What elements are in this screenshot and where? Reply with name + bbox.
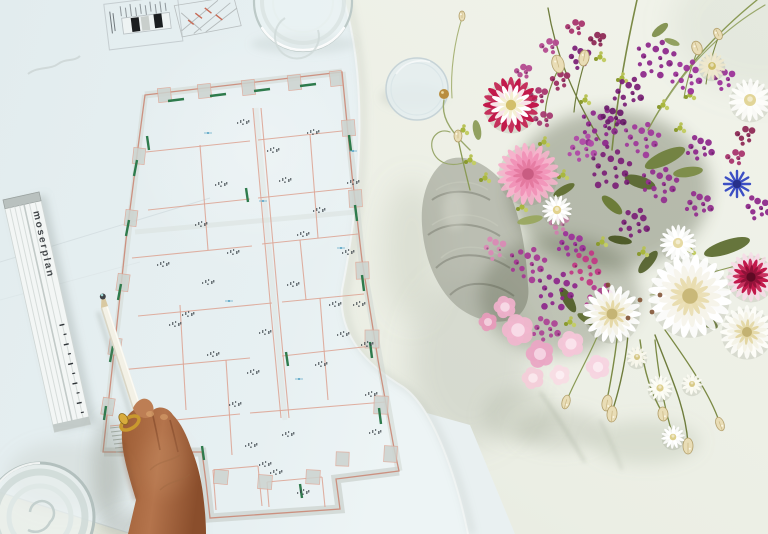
- annotation-mark: [358, 306, 360, 307]
- annotation-mark: [268, 331, 270, 334]
- annotation-mark: [290, 282, 291, 285]
- annotation-mark: [162, 266, 164, 267]
- green-bud: [560, 172, 565, 177]
- annotation-mark: [235, 401, 236, 403]
- annotation-mark: [372, 342, 373, 345]
- annotation-mark: [250, 447, 252, 448]
- green-bud: [524, 208, 528, 212]
- annotation-mark: [278, 148, 279, 151]
- green-bud: [602, 58, 606, 62]
- annotation-mark: [279, 471, 281, 474]
- annotation-mark: [187, 316, 189, 317]
- annotation-mark: [312, 134, 314, 135]
- annotation-mark: [358, 180, 359, 183]
- annotation-mark: [268, 463, 270, 466]
- annotation-mark: [326, 362, 327, 365]
- green-bud: [679, 122, 683, 126]
- annotation-mark: [157, 264, 158, 266]
- annotation-mark: [226, 182, 227, 185]
- pilaster: [213, 469, 228, 484]
- annotation-mark: [276, 469, 277, 471]
- seed-dot: [626, 316, 631, 321]
- annotation-mark: [251, 442, 252, 444]
- annotation-mark: [332, 302, 333, 305]
- pilaster: [329, 70, 343, 86]
- annotation-mark: [320, 366, 322, 367]
- annotation-mark: [297, 234, 298, 236]
- green-bud: [565, 176, 569, 180]
- annotation-mark: [258, 370, 259, 373]
- annotation-mark: [207, 284, 209, 285]
- annotation-mark: [303, 489, 304, 491]
- amber-bud: [439, 89, 449, 99]
- annotation-mark: [232, 254, 234, 255]
- green-bud: [462, 124, 466, 128]
- scale-bar-black: [131, 17, 141, 32]
- green-bud: [637, 252, 641, 256]
- green-bud: [587, 101, 591, 105]
- annotation-mark: [316, 208, 317, 211]
- annotation-mark: [293, 432, 294, 435]
- pilaster: [197, 83, 211, 98]
- annotation-mark: [182, 314, 183, 316]
- annotation-mark: [318, 130, 319, 133]
- knuckle-highlight: [160, 414, 168, 420]
- annotation-mark: [372, 430, 373, 433]
- annotation-mark: [353, 304, 354, 306]
- annotation-mark: [306, 233, 308, 236]
- annotation-mark: [229, 404, 230, 406]
- annotation-mark: [371, 391, 372, 393]
- annotation-mark: [259, 464, 260, 466]
- annotation-mark: [352, 184, 354, 185]
- annotation-mark: [262, 330, 263, 333]
- annotation-mark: [248, 443, 249, 446]
- green-bud: [597, 54, 602, 59]
- annotation-mark: [296, 283, 298, 286]
- annotation-mark: [359, 301, 360, 303]
- scale-bar-gray: [141, 16, 151, 31]
- annotation-mark: [200, 226, 202, 227]
- green-bud: [684, 95, 688, 99]
- annotation-mark: [213, 351, 214, 353]
- annotation-mark: [236, 251, 238, 254]
- annotation-mark: [380, 430, 381, 433]
- photo-scene: moserplan: [0, 0, 768, 534]
- annotation-mark: [264, 334, 266, 335]
- annotation-mark: [221, 181, 222, 183]
- annotation-mark: [275, 474, 277, 475]
- pilaster: [287, 74, 301, 90]
- annotation-mark: [334, 306, 336, 307]
- annotation-mark: [191, 313, 193, 316]
- annotation-mark: [365, 394, 366, 396]
- annotation-mark: [342, 336, 344, 337]
- green-bud: [564, 322, 568, 326]
- annotation-mark: [207, 354, 208, 356]
- annotation-mark: [230, 250, 231, 253]
- annotation-mark: [247, 372, 248, 374]
- annotation-mark: [281, 470, 282, 473]
- amber-bud-glint: [441, 91, 444, 94]
- annotation-mark: [169, 324, 170, 326]
- annotation-mark: [232, 402, 233, 405]
- pilaster: [336, 452, 349, 466]
- green-bud: [665, 106, 669, 110]
- annotation-mark: [370, 343, 372, 346]
- pilaster: [384, 446, 398, 463]
- annotation-mark: [297, 492, 298, 494]
- green-bud: [469, 154, 473, 158]
- green-bud: [465, 131, 469, 135]
- annotation-mark: [213, 280, 214, 283]
- pilaster: [132, 147, 146, 164]
- green-bud: [616, 78, 620, 82]
- green-bud: [596, 242, 600, 246]
- green-bud: [516, 207, 520, 211]
- annotation-mark: [353, 179, 354, 181]
- annotation-mark: [233, 249, 234, 251]
- annotation-mark: [338, 303, 340, 306]
- annotation-mark: [254, 444, 256, 447]
- annotation-mark: [318, 362, 319, 365]
- annotation-mark: [310, 130, 311, 133]
- annotation-mark: [273, 470, 274, 473]
- annotation-mark: [290, 178, 291, 181]
- annotation-mark: [238, 250, 239, 253]
- dried-bud: [454, 130, 462, 142]
- annotation-mark: [348, 332, 349, 335]
- annotation-mark: [356, 181, 358, 184]
- stem-shadow: [482, 387, 558, 443]
- annotation-mark: [322, 209, 324, 212]
- annotation-mark: [367, 341, 368, 343]
- annotation-mark: [282, 178, 283, 181]
- annotation-mark: [272, 152, 274, 153]
- green-bud: [579, 100, 583, 104]
- annotation-mark: [346, 333, 348, 336]
- photo-canvas: moserplan: [0, 0, 768, 534]
- annotation-mark: [298, 282, 299, 285]
- annotation-mark: [350, 180, 351, 183]
- pilaster: [306, 470, 321, 485]
- annotation-mark: [374, 393, 376, 396]
- annotation-mark: [321, 361, 322, 363]
- annotation-mark: [292, 286, 294, 287]
- green-bud: [582, 97, 587, 102]
- annotation-mark: [248, 120, 249, 123]
- annotation-mark: [270, 472, 271, 474]
- annotation-mark: [370, 396, 372, 397]
- green-bud: [472, 161, 476, 165]
- annotation-mark: [234, 406, 236, 407]
- green-bud: [604, 243, 608, 247]
- annotation-mark: [180, 322, 181, 325]
- annotation-mark: [369, 432, 370, 434]
- green-bud: [662, 99, 666, 103]
- annotation-mark: [215, 184, 216, 186]
- annotation-mark: [324, 208, 325, 211]
- pilaster: [116, 273, 130, 292]
- green-bud: [621, 72, 625, 76]
- annotation-mark: [337, 334, 338, 336]
- annotation-mark: [227, 252, 228, 254]
- annotation-mark: [342, 252, 343, 254]
- annotation-mark: [376, 392, 377, 395]
- annotation-mark: [316, 131, 318, 134]
- annotation-mark: [345, 250, 346, 253]
- annotation-mark: [287, 436, 289, 437]
- annotation-mark: [202, 282, 203, 284]
- annotation-mark: [324, 363, 326, 366]
- annotation-mark: [243, 119, 244, 121]
- annotation-mark: [308, 232, 309, 235]
- annotation-mark: [195, 224, 196, 226]
- annotation-mark: [240, 120, 241, 123]
- annotation-mark: [282, 434, 283, 436]
- annotation-mark: [313, 210, 314, 212]
- annotation-mark: [185, 312, 186, 315]
- annotation-mark: [303, 231, 304, 233]
- annotation-mark: [276, 149, 278, 152]
- annotation-mark: [364, 302, 365, 305]
- green-bud: [487, 179, 491, 183]
- annotation-mark: [245, 445, 246, 447]
- annotation-mark: [242, 124, 244, 125]
- annotation-mark: [279, 180, 280, 182]
- green-bud: [479, 178, 483, 182]
- annotation-mark: [175, 321, 176, 323]
- pencil-tip-glint: [101, 294, 104, 297]
- annotation-mark: [335, 301, 336, 303]
- annotation-mark: [246, 121, 248, 124]
- annotation-mark: [204, 223, 206, 226]
- annotation-mark: [293, 281, 294, 283]
- annotation-mark: [285, 177, 286, 179]
- annotation-mark: [308, 490, 309, 493]
- annotation-mark: [343, 331, 344, 333]
- annotation-mark: [174, 326, 176, 327]
- green-bud: [546, 143, 550, 147]
- annotation-mark: [216, 353, 218, 356]
- annotation-mark: [302, 236, 304, 237]
- pilaster: [101, 397, 116, 416]
- green-bud: [464, 160, 468, 164]
- pilaster: [341, 120, 355, 137]
- annotation-mark: [270, 148, 271, 151]
- green-bud: [599, 239, 604, 244]
- pilaster: [258, 475, 273, 490]
- annotation-mark: [237, 122, 238, 124]
- annotation-mark: [287, 284, 288, 286]
- seed-dot: [650, 310, 655, 315]
- green-bud: [657, 105, 661, 109]
- green-bud: [543, 136, 547, 140]
- annotation-mark: [252, 374, 254, 375]
- annotation-mark: [306, 491, 308, 494]
- green-bud: [572, 323, 576, 327]
- annotation-mark: [193, 312, 194, 315]
- annotation-mark: [351, 251, 353, 254]
- annotation-mark: [319, 207, 320, 209]
- annotation-mark: [178, 323, 180, 326]
- annotation-mark: [375, 429, 376, 431]
- green-bud: [562, 169, 566, 173]
- annotation-mark: [348, 249, 349, 251]
- annotation-mark: [211, 281, 213, 284]
- annotation-mark: [368, 392, 369, 395]
- annotation-mark: [362, 303, 364, 306]
- pilaster: [349, 190, 363, 208]
- annotation-mark: [188, 311, 189, 313]
- annotation-mark: [340, 332, 341, 335]
- annotation-mark: [288, 179, 290, 182]
- knuckle-highlight: [146, 411, 154, 417]
- green-bud: [567, 319, 572, 324]
- green-bud: [541, 139, 546, 144]
- annotation-mark: [340, 302, 341, 305]
- annotation-mark: [265, 461, 266, 463]
- annotation-mark: [356, 302, 357, 305]
- seed-dot: [638, 298, 643, 303]
- annotation-mark: [300, 232, 301, 235]
- annotation-mark: [212, 356, 214, 357]
- annotation-mark: [220, 186, 222, 187]
- annotation-mark: [347, 254, 349, 255]
- pilaster: [124, 209, 138, 226]
- green-bud: [677, 125, 682, 130]
- annotation-mark: [160, 262, 161, 265]
- annotation-mark: [253, 369, 254, 371]
- green-bud: [640, 249, 645, 254]
- green-bud: [484, 172, 488, 176]
- annotation-mark: [364, 342, 365, 345]
- annotation-mark: [291, 433, 293, 436]
- annotation-mark: [302, 494, 304, 495]
- annotation-mark: [168, 262, 169, 265]
- annotation-mark: [250, 370, 251, 373]
- annotation-mark: [284, 182, 286, 183]
- green-bud: [692, 96, 696, 100]
- coaster-disc: [386, 58, 448, 120]
- annotation-mark: [315, 364, 316, 366]
- green-bud: [594, 57, 598, 61]
- annotation-mark: [307, 132, 308, 134]
- annotation-mark: [201, 221, 202, 223]
- annotation-mark: [270, 330, 271, 333]
- green-bud: [645, 253, 649, 257]
- green-bud: [642, 246, 646, 250]
- scale-bar-black: [153, 13, 163, 28]
- annotation-mark: [208, 279, 209, 281]
- annotation-mark: [262, 462, 263, 465]
- green-bud: [467, 157, 472, 162]
- annotation-mark: [264, 466, 266, 467]
- annotation-mark: [210, 352, 211, 355]
- annotation-mark: [256, 443, 257, 446]
- annotation-mark: [288, 431, 289, 433]
- annotation-mark: [361, 344, 362, 346]
- green-bud: [482, 175, 487, 180]
- annotation-mark: [198, 222, 199, 225]
- annotation-mark: [265, 329, 266, 331]
- seed-dot: [658, 293, 663, 298]
- annotation-mark: [329, 304, 330, 306]
- green-bud: [584, 94, 588, 98]
- annotation-mark: [285, 432, 286, 435]
- vase-highlight: [443, 190, 467, 230]
- annotation-mark: [313, 129, 314, 131]
- annotation-mark: [374, 434, 376, 435]
- pilaster: [374, 396, 389, 414]
- annotation-mark: [206, 222, 207, 225]
- green-bud: [599, 51, 603, 55]
- annotation-mark: [166, 263, 168, 266]
- pilaster: [365, 330, 379, 348]
- annotation-mark: [259, 332, 260, 334]
- dried-bud: [459, 11, 465, 21]
- annotation-mark: [378, 431, 380, 434]
- green-bud: [682, 129, 686, 133]
- annotation-mark: [163, 261, 164, 263]
- hand-highlight: [143, 435, 187, 495]
- annotation-mark: [267, 150, 268, 152]
- green-bud: [674, 128, 678, 132]
- annotation-mark: [300, 490, 301, 493]
- green-bud: [601, 236, 605, 240]
- annotation-mark: [353, 250, 354, 253]
- green-bud: [660, 102, 665, 107]
- seed-dot: [606, 283, 611, 288]
- annotation-mark: [273, 147, 274, 149]
- annotation-mark: [205, 280, 206, 283]
- annotation-mark: [218, 352, 219, 355]
- annotation-mark: [270, 462, 271, 465]
- annotation-mark: [240, 402, 241, 405]
- green-bud: [569, 316, 573, 320]
- drinking-glass-top: [251, 0, 355, 58]
- annotation-mark: [224, 183, 226, 186]
- green-bud: [538, 142, 542, 146]
- pilaster: [241, 79, 255, 95]
- annotation-mark: [318, 212, 320, 213]
- annotation-mark: [218, 182, 219, 185]
- annotation-mark: [256, 371, 258, 374]
- annotation-mark: [347, 182, 348, 184]
- dried-bud: [683, 438, 693, 454]
- annotation-mark: [366, 346, 368, 347]
- annotation-mark: [172, 322, 173, 325]
- annotation-mark: [238, 403, 240, 406]
